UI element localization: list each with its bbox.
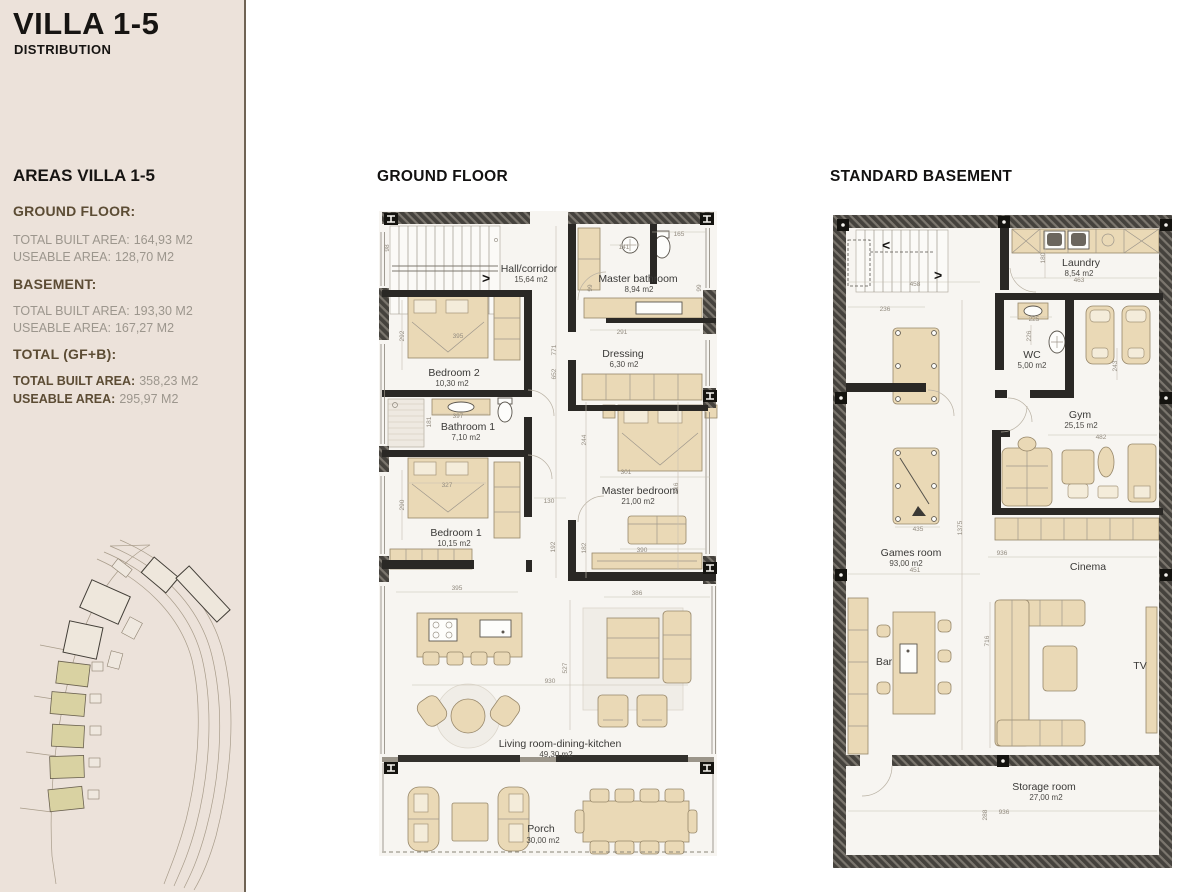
svg-text:936: 936 — [999, 809, 1010, 816]
pool-table — [893, 328, 939, 404]
svg-text:716: 716 — [984, 635, 991, 646]
svg-text:7,10 m2: 7,10 m2 — [452, 433, 481, 442]
stair-direction-arrow: < — [882, 237, 890, 253]
svg-text:93,00 m2: 93,00 m2 — [889, 559, 923, 568]
svg-text:244: 244 — [581, 434, 588, 445]
svg-text:386: 386 — [632, 590, 643, 597]
svg-text:936: 936 — [997, 550, 1008, 557]
svg-text:463: 463 — [1074, 277, 1085, 284]
svg-text:8,94 m2: 8,94 m2 — [625, 285, 654, 294]
svg-text:435: 435 — [913, 526, 924, 533]
room-label-porch: Porch — [527, 823, 555, 835]
stair-direction-arrow: > — [482, 270, 490, 286]
kitchen-sink — [480, 620, 511, 637]
svg-text:397: 397 — [453, 413, 464, 420]
svg-text:180: 180 — [1040, 252, 1047, 263]
tv-unit — [1146, 607, 1157, 733]
svg-text:182: 182 — [581, 542, 588, 553]
svg-text:390: 390 — [637, 547, 648, 554]
svg-text:288: 288 — [982, 809, 989, 820]
svg-text:25,15 m2: 25,15 m2 — [1064, 421, 1098, 430]
billiard-table — [893, 448, 939, 524]
svg-text:181: 181 — [426, 416, 433, 427]
svg-text:30,00 m2: 30,00 m2 — [526, 836, 560, 845]
svg-text:165: 165 — [674, 231, 685, 238]
room-label-bedroom2: Bedroom 2 — [428, 367, 480, 379]
svg-text:652: 652 — [551, 368, 558, 379]
room-label-tv: TV — [1133, 660, 1146, 672]
room-label-dressing: Dressing — [602, 348, 644, 360]
svg-text:243: 243 — [1112, 360, 1119, 371]
stove — [429, 619, 457, 641]
svg-text:395: 395 — [452, 585, 463, 592]
toilet — [498, 398, 512, 422]
svg-text:99: 99 — [587, 284, 594, 292]
svg-text:327: 327 — [442, 482, 453, 489]
svg-text:49,30 m2: 49,30 m2 — [539, 750, 573, 759]
basement-staircase — [848, 230, 948, 292]
svg-text:1375: 1375 — [957, 520, 964, 535]
site-buildings — [48, 557, 230, 812]
svg-text:395: 395 — [453, 333, 464, 340]
svg-text:192: 192 — [550, 541, 557, 552]
toilet — [1049, 331, 1065, 353]
shower — [388, 399, 424, 447]
svg-text:10,15 m2: 10,15 m2 — [437, 539, 471, 548]
svg-text:8,54 m2: 8,54 m2 — [1065, 269, 1094, 278]
svg-text:236: 236 — [880, 306, 891, 313]
room-label-gym: Gym — [1069, 409, 1091, 421]
svg-text:6,30 m2: 6,30 m2 — [610, 360, 639, 369]
room-label-bedroom1: Bedroom 1 — [430, 527, 482, 539]
svg-text:290: 290 — [399, 499, 406, 510]
room-label-laundry: Laundry — [1062, 257, 1101, 269]
svg-text:226: 226 — [1026, 330, 1033, 341]
svg-text:141: 141 — [619, 244, 630, 251]
room-label-storage: Storage room — [1012, 781, 1076, 793]
svg-text:98: 98 — [384, 244, 391, 252]
ground-floor-plan: > — [379, 211, 717, 856]
room-label-wc: WC — [1023, 349, 1041, 361]
room-label-bathroom1: Bathroom 1 — [441, 421, 495, 433]
svg-text:527: 527 — [562, 662, 569, 673]
room-label-games-room: Games room — [881, 547, 942, 559]
svg-text:130: 130 — [544, 498, 555, 505]
room-label-bar: Bar — [876, 656, 893, 668]
room-label-master-bedroom: Master bedroom — [602, 485, 679, 497]
svg-text:458: 458 — [910, 281, 921, 288]
svg-text:301: 301 — [621, 469, 632, 476]
svg-text:15,64 m2: 15,64 m2 — [514, 275, 548, 284]
svg-text:99: 99 — [696, 284, 703, 292]
svg-text:292: 292 — [399, 330, 406, 341]
svg-text:10,30 m2: 10,30 m2 — [435, 379, 469, 388]
floor-plans-canvas: > — [0, 0, 1200, 892]
stair-direction-arrow: > — [934, 267, 942, 283]
svg-text:771: 771 — [551, 344, 558, 355]
svg-text:225: 225 — [1029, 316, 1040, 323]
site-plan — [20, 540, 231, 890]
svg-text:930: 930 — [545, 678, 556, 685]
basement-plan: < > — [833, 215, 1172, 868]
svg-text:451: 451 — [910, 567, 921, 574]
svg-text:482: 482 — [1096, 434, 1107, 441]
room-label-living: Living room-dining-kitchen — [499, 738, 622, 750]
svg-text:21,00 m2: 21,00 m2 — [621, 497, 655, 506]
room-label-master-bathroom: Master bathroom — [598, 273, 678, 285]
svg-text:5,00 m2: 5,00 m2 — [1018, 361, 1047, 370]
svg-text:27,00 m2: 27,00 m2 — [1029, 793, 1063, 802]
room-label-cinema: Cinema — [1070, 561, 1106, 573]
svg-text:291: 291 — [617, 329, 628, 336]
room-label-hall: Hall/corridor — [501, 263, 558, 275]
